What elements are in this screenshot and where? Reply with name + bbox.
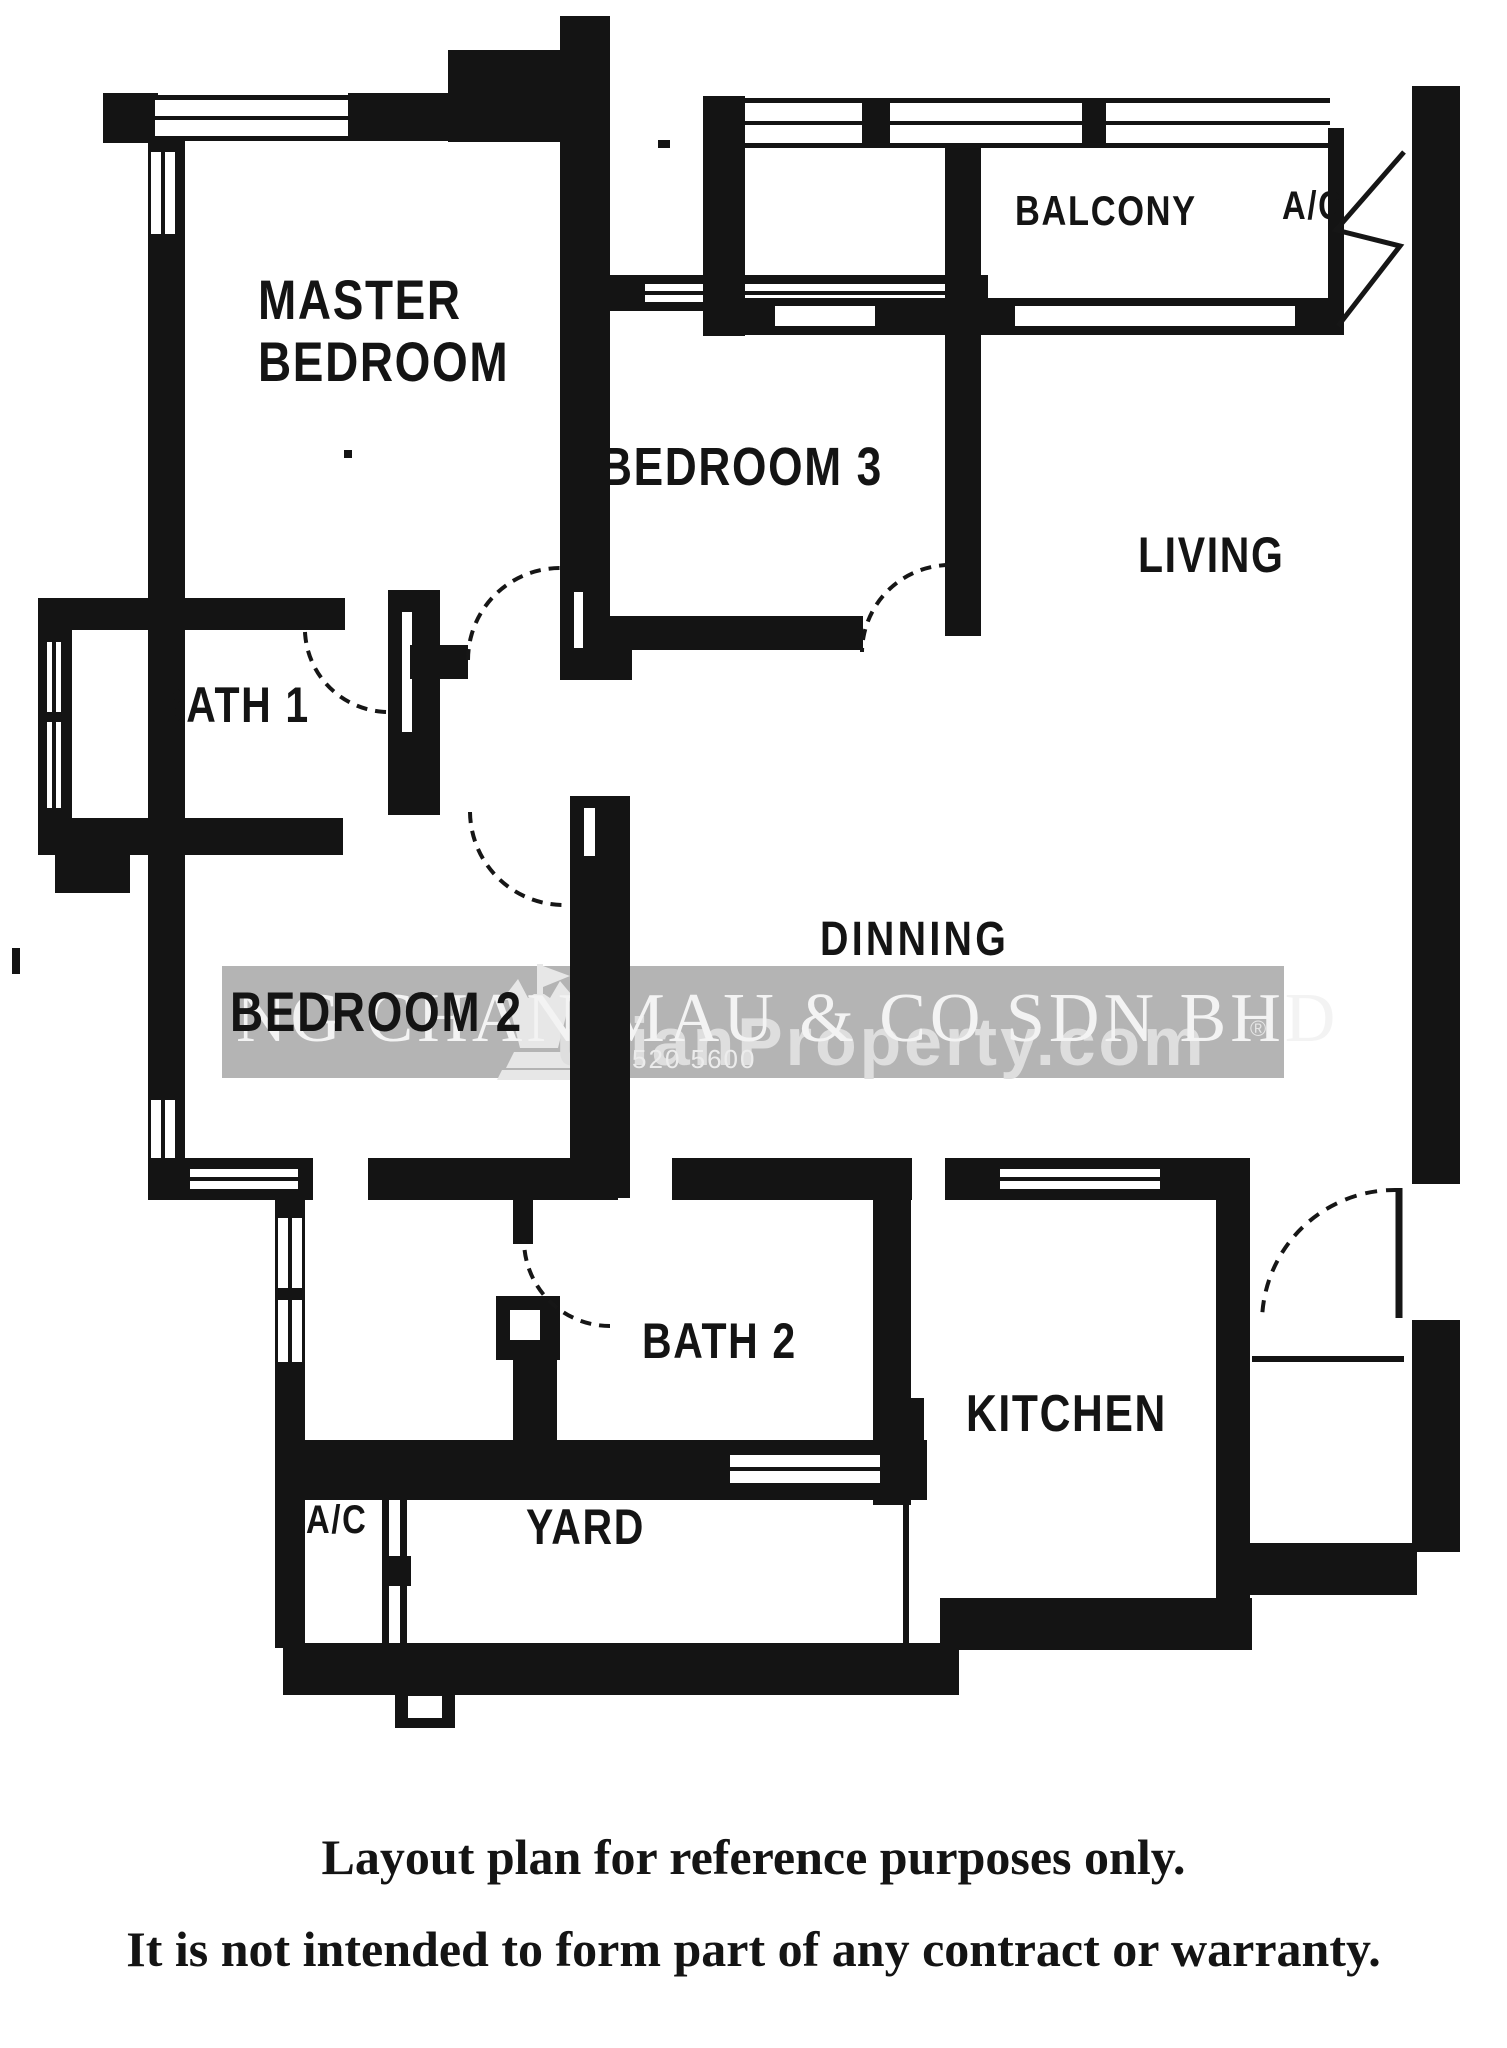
disclaimer-line-1: Layout plan for reference purposes only. (0, 1832, 1507, 1882)
plan-speck (658, 140, 670, 148)
room-label-ac-bottom: A/C (306, 1500, 367, 1540)
plan-speck (12, 948, 20, 974)
door-frame-slit-master (574, 592, 583, 650)
window-balcony-bottom-right (1015, 306, 1295, 326)
wall-kitchen-bottom (940, 1598, 1252, 1650)
room-label-balcony: BALCONY (1015, 190, 1197, 232)
room-label-yard: YARD (526, 1502, 645, 1552)
niche-inner (510, 1310, 540, 1340)
outer-wall-bottom (283, 1643, 959, 1695)
wall-master-top-step (448, 50, 570, 142)
room-label-bedroom-3: BEDROOM 3 (600, 440, 883, 494)
bottom-notch-inner (408, 1696, 442, 1718)
wall-bedroom3-right (945, 128, 981, 636)
window-balcony-bottom-left (775, 306, 875, 326)
room-label-ac-top: A/C (1282, 186, 1343, 226)
wall-bedroom2-right (570, 796, 630, 1198)
room-label-bath-2: BATH 2 (642, 1316, 797, 1366)
foyer-threshold-line (1252, 1356, 1404, 1362)
wall-bath1-top (55, 598, 345, 630)
disclaimer-line-2: It is not intended to form part of any c… (0, 1924, 1507, 1974)
room-label-master-bedroom-line2: BEDROOM (258, 334, 509, 390)
window-kitchen-top (1000, 1164, 1160, 1194)
wall-balcony-top-tick1 (862, 98, 890, 148)
window-yard-left-upper (278, 1218, 302, 1288)
room-label-living: LIVING (1138, 530, 1285, 580)
door-arc-bedroom2 (470, 812, 565, 905)
wall-bath2-right-foot (876, 1398, 924, 1444)
window-bedroom2-bottom (190, 1164, 298, 1194)
wall-master-right-stub (560, 648, 632, 680)
door-arc-master-bedroom (468, 568, 560, 660)
wall-ac-partition (1328, 128, 1344, 335)
wall-bath1-step (55, 855, 130, 893)
window-master-left (151, 152, 175, 234)
wall-bath1-right (388, 590, 440, 815)
wall-master-right (560, 16, 610, 664)
outer-wall-right-lower (1412, 1320, 1460, 1552)
watermark-registered-mark: ® (1250, 1018, 1266, 1040)
window-master-top (155, 95, 350, 141)
wall-band-a (368, 1158, 618, 1200)
door-arc-entrance (1262, 1190, 1398, 1320)
window-bath1-left-upper (42, 642, 66, 712)
room-label-bedroom-2: BEDROOM 2 (230, 984, 523, 1040)
room-label-master-bedroom-line1: MASTER (258, 272, 462, 328)
door-arc-bedroom3 (862, 565, 950, 652)
room-label-dinning: DINNING (820, 916, 1009, 964)
room-label-bath-1: BATH 1 (155, 680, 310, 730)
door-arc-bath1 (305, 632, 388, 712)
wall-top-left-corner (103, 93, 158, 143)
floor-plan-page: urianProperty.com NG CHAN MAU & CO SDN B… (0, 0, 1507, 2048)
door-frame-slit-bedroom2 (584, 808, 595, 856)
window-balcony-top (745, 98, 1330, 148)
ac-unit-symbol (1336, 152, 1404, 326)
window-yard-left-lower (278, 1300, 302, 1362)
yard-divider-line (903, 1500, 909, 1643)
plan-speck (344, 450, 352, 458)
wall-hall-stub (410, 645, 468, 679)
ac-closet-block (383, 1556, 411, 1586)
wall-bath1-bottom (38, 818, 343, 855)
wall-balcony-left (703, 96, 745, 336)
wall-balcony-top-tick2 (1082, 98, 1106, 148)
wall-bath2-left-upper (513, 1196, 533, 1244)
window-bath1-left-lower (42, 722, 66, 808)
outer-wall-right-upper (1412, 86, 1460, 1184)
window-yard-kitchen (730, 1450, 880, 1488)
wall-bedroom3-bottom (608, 616, 863, 650)
wall-master-left (148, 140, 185, 860)
room-label-kitchen: KITCHEN (966, 1388, 1167, 1440)
wall-foyer-bottom (1245, 1543, 1417, 1595)
